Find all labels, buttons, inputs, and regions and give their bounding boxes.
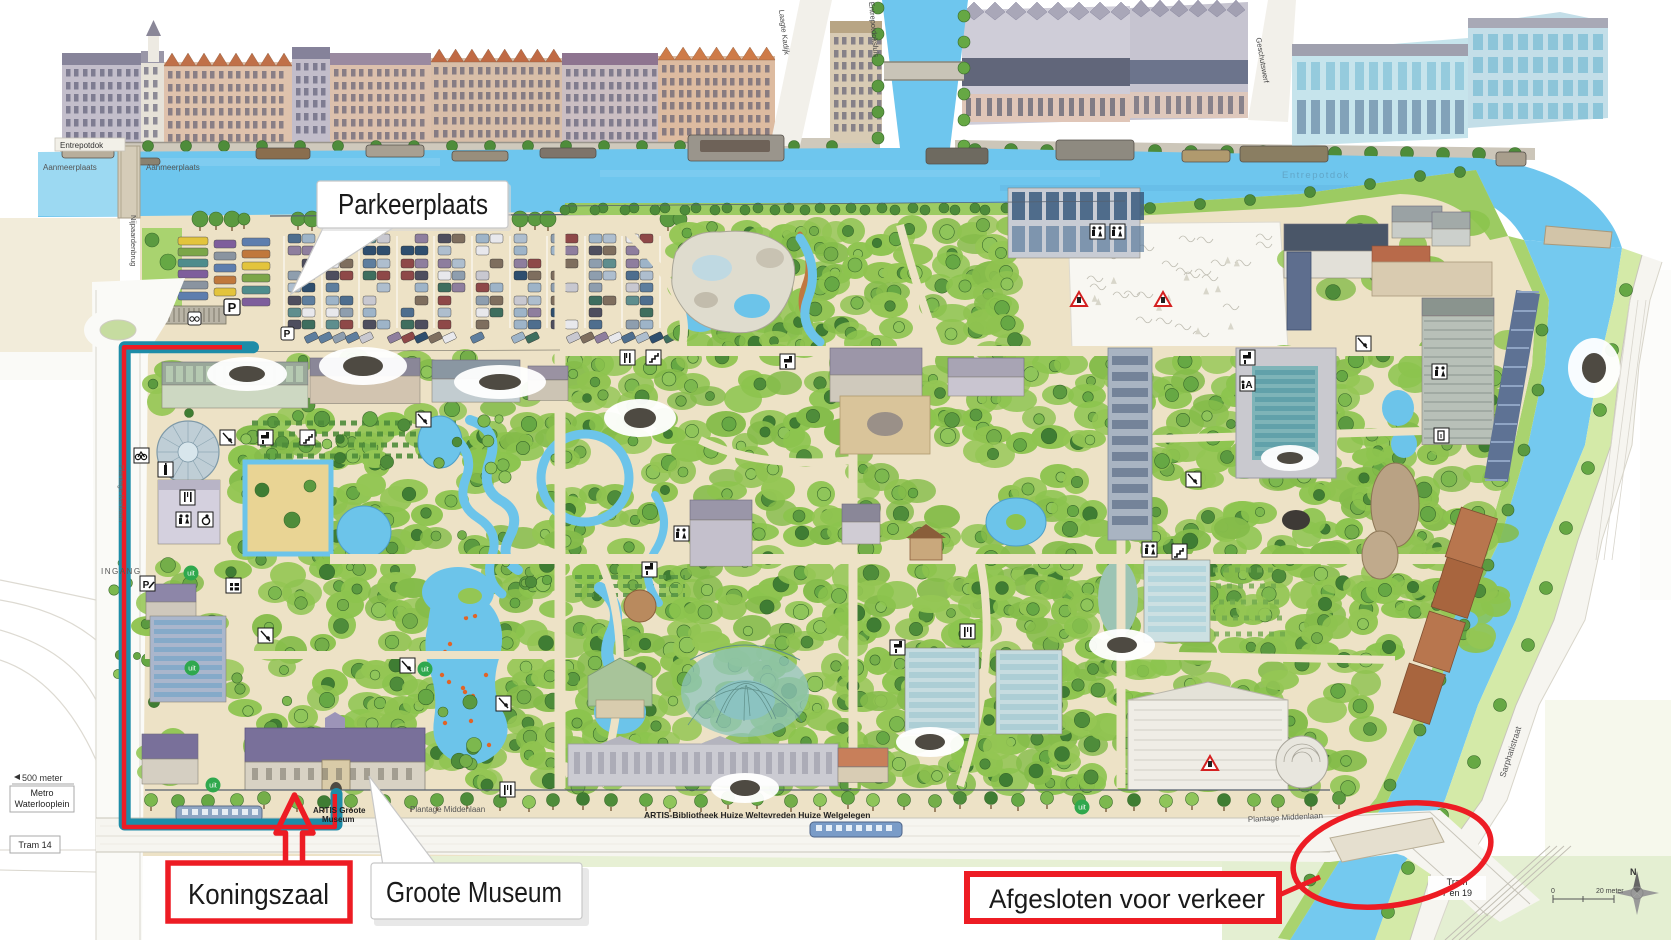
svg-text:Entrepotdok: Entrepotdok [60,141,104,150]
svg-text:Koningszaal: Koningszaal [188,879,329,911]
svg-text:INGANG: INGANG [101,567,142,576]
svg-text:Afgesloten voor verkeer: Afgesloten voor verkeer [989,884,1265,914]
svg-text:uit: uit [209,783,216,790]
svg-text:uit: uit [187,571,194,578]
svg-text:ARTIS-Bibliotheek Huize Welte: ARTIS-Bibliotheek Huize Weltevreden Huiz… [644,810,870,820]
svg-text:0: 0 [1551,888,1555,895]
svg-text:Museum: Museum [322,815,354,824]
svg-text:Nijpaardenbrug: Nijpaardenbrug [129,215,138,266]
svg-text:P: P [284,329,291,340]
svg-text:A: A [1245,380,1252,391]
svg-text:Plantage Middenlaan: Plantage Middenlaan [410,805,485,814]
svg-text:Groote Museum: Groote Museum [386,877,562,909]
svg-text:Entrepotdok: Entrepotdok [1282,170,1350,181]
svg-text:500 meter: 500 meter [22,773,63,783]
svg-text:P: P [228,300,237,315]
svg-text:Waterlooplein: Waterlooplein [15,799,70,809]
svg-text:uit: uit [421,667,428,674]
svg-text:Tram 14: Tram 14 [18,840,51,850]
svg-text:Metro: Metro [30,788,53,798]
svg-text:P: P [143,580,150,591]
svg-text:N: N [1630,867,1637,877]
svg-text:uit: uit [1078,805,1085,812]
svg-text:uit: uit [188,666,195,673]
svg-text:Aanmeerplaats: Aanmeerplaats [43,163,97,172]
svg-text:Parkeerplaats: Parkeerplaats [338,189,488,221]
svg-text:ARTIS Groote: ARTIS Groote [313,806,366,815]
svg-text:Plantage Kerklaan: Plantage Kerklaan [117,465,124,522]
svg-text:Aanmeerplaats: Aanmeerplaats [146,163,200,172]
svg-text:20 meter: 20 meter [1596,888,1624,895]
